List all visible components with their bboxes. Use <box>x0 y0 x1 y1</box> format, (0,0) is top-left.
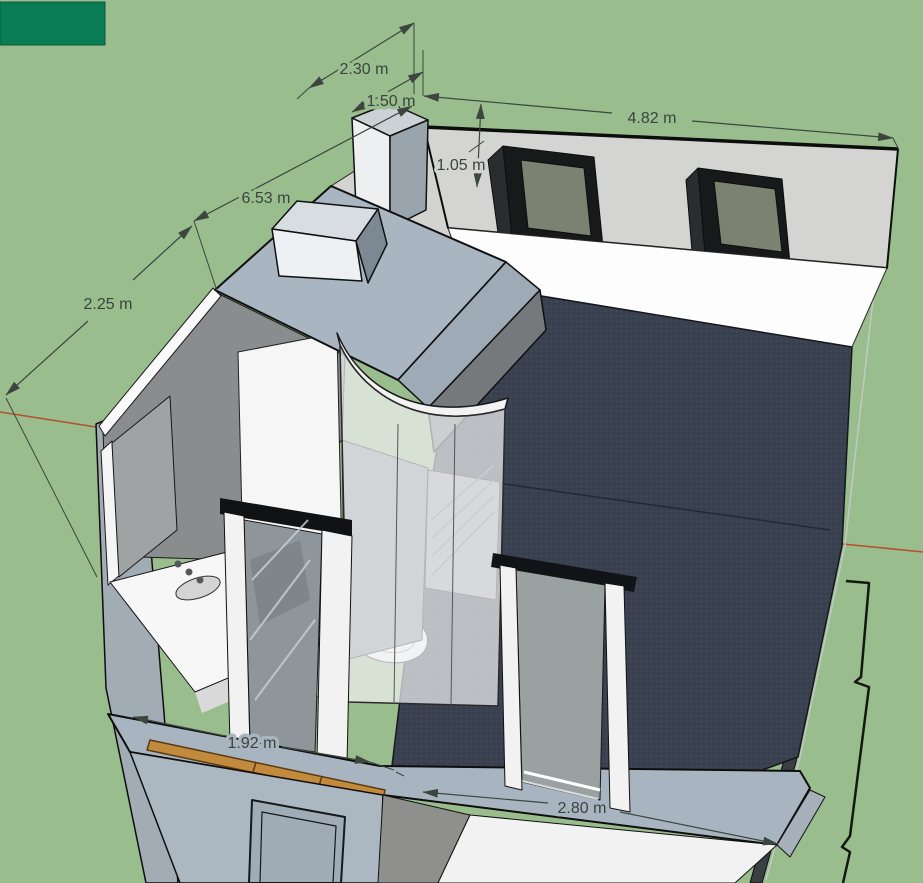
front-window <box>491 553 637 812</box>
window-glass <box>714 181 782 252</box>
bathroom-window <box>220 498 352 764</box>
faucet-hole <box>175 561 182 568</box>
rooftop-box <box>272 201 387 283</box>
window-glass <box>516 570 605 800</box>
shaft-right-face <box>390 120 428 228</box>
3d-canvas[interactable]: 2.30 m 1.50 m 4.82 m 1.05 m 6.53 m 2.25 … <box>0 0 923 883</box>
dimension-label: 1.05 m <box>437 157 486 174</box>
dimension-label: 6.53 m <box>242 190 291 207</box>
window-glass <box>521 160 591 236</box>
faucet-hole <box>186 569 193 576</box>
corner-tab <box>0 2 105 45</box>
faucet-hole <box>197 577 204 584</box>
dimension-label: 2.80 m <box>558 800 607 817</box>
dimension-label: 2.25 m <box>84 296 133 313</box>
model-viewport[interactable]: 2.30 m 1.50 m 4.82 m 1.05 m 6.53 m 2.25 … <box>0 0 923 883</box>
dimension-label: 1.92 m <box>228 735 277 752</box>
dimension-label: 2.30 m <box>340 61 389 78</box>
window-jamb-right <box>317 530 352 764</box>
dimension-label: 4.82 m <box>628 110 677 127</box>
